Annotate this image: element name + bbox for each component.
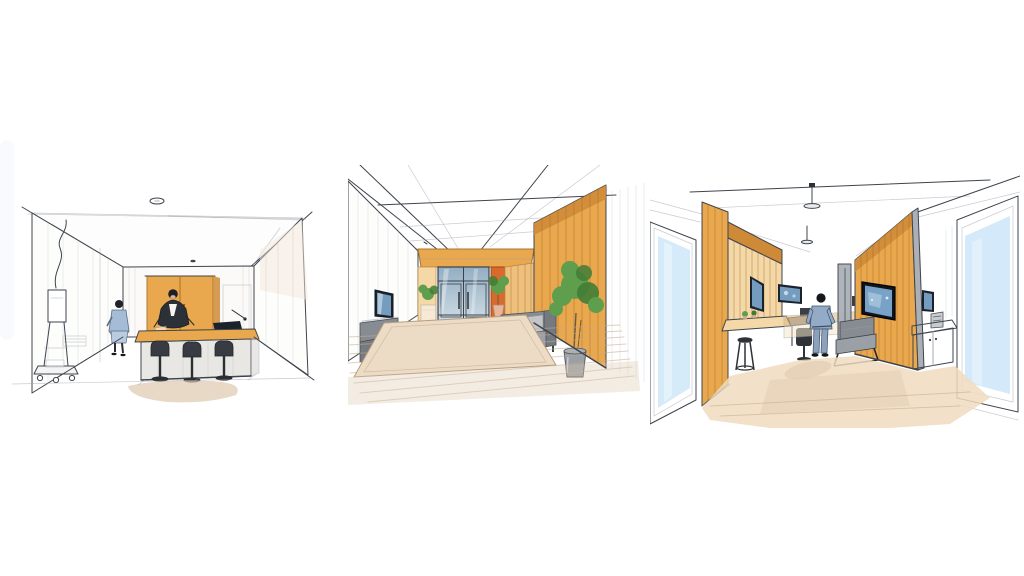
sketch-gallery-corridor: [650, 170, 1020, 438]
small-framed-display: [922, 290, 934, 312]
gallery-corridor-drawing: [650, 170, 1020, 438]
consultation-room-drawing: [8, 190, 318, 430]
back-wall-screen: [778, 284, 802, 304]
sketch-consultation-room: [8, 190, 318, 430]
pendant-light: [802, 226, 813, 244]
sketch-entrance-lobby: [348, 165, 648, 430]
entrance-lobby-drawing: [348, 165, 648, 430]
left-window: [650, 222, 696, 424]
wall-tv: [375, 290, 393, 318]
glass-entrance-door: [438, 267, 489, 323]
device: [931, 312, 943, 328]
counter-stool: [736, 337, 754, 370]
large-wall-display: [862, 282, 895, 320]
